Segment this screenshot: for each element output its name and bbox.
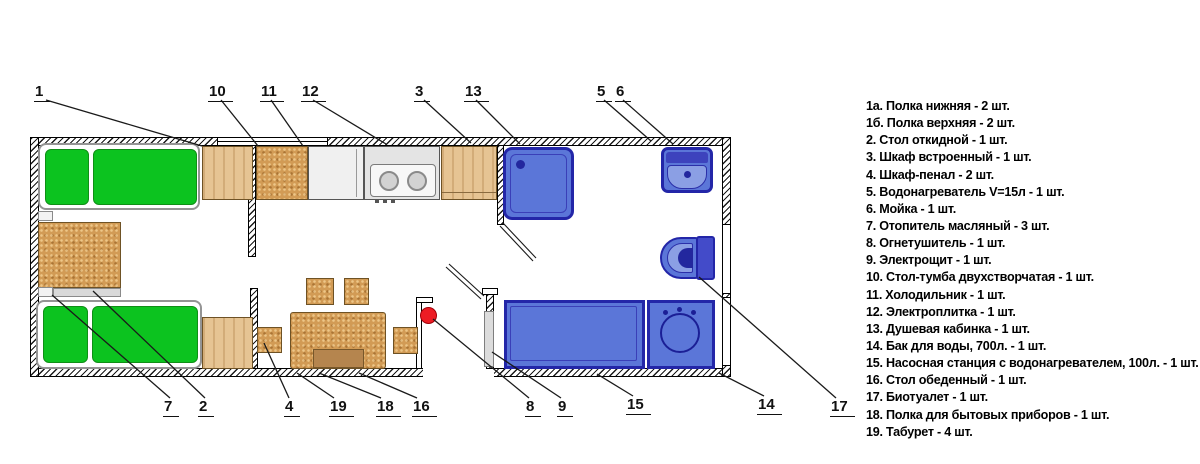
stool (257, 327, 282, 353)
callout-18: 18 (376, 399, 401, 417)
callout-7: 7 (163, 399, 179, 417)
callout-12: 12 (301, 84, 326, 102)
wall-bottom (30, 368, 731, 377)
legend-item: 2. Стол откидной - 1 шт. (866, 132, 1199, 149)
legend-item: 11. Холодильник - 1 шт. (866, 287, 1199, 304)
legend-item: 15. Насосная станция с водонагревателем,… (866, 355, 1199, 372)
folding-table-edge (53, 288, 121, 297)
water-tank (647, 300, 715, 369)
electrical-panel (484, 311, 494, 367)
callout-13: 13 (464, 84, 489, 102)
mattress (43, 306, 88, 363)
entry-jamb-cap (416, 297, 433, 303)
callout-14: 14 (757, 397, 782, 415)
callout-9: 9 (557, 399, 573, 417)
stove (364, 146, 440, 200)
legend-item: 10. Стол-тумба двухстворчатая - 1 шт. (866, 269, 1199, 286)
shower-drain (516, 160, 525, 169)
pump-station (504, 300, 645, 369)
legend-item: 17. Биотуалет - 1 шт. (866, 389, 1199, 406)
legend-item: 7. Отопитель масляный - 3 шт. (866, 218, 1199, 235)
tall-cabinet-top (202, 146, 253, 200)
tall-cabinet-bottom (202, 317, 253, 369)
legend-item: 4. Шкаф-пенал - 2 шт. (866, 167, 1199, 184)
callout-3: 3 (414, 84, 430, 102)
callout-10: 10 (208, 84, 233, 102)
window-top (217, 137, 328, 146)
appliance-shelf (313, 349, 364, 368)
legend-item: 3. Шкаф встроенный - 1 шт. (866, 149, 1199, 166)
door-panel-right-upper (722, 224, 731, 294)
oil-heater (38, 287, 53, 297)
callout-4: 4 (284, 399, 300, 417)
legend-item: 1а. Полка нижняя - 2 шт. (866, 98, 1199, 115)
callout-6: 6 (615, 84, 631, 102)
legend-item: 16. Стол обеденный - 1 шт. (866, 372, 1199, 389)
mattress (92, 306, 198, 363)
legend: 1а. Полка нижняя - 2 шт. 1б. Полка верхн… (866, 98, 1199, 441)
legend-item: 8. Огнетушитель - 1 шт. (866, 235, 1199, 252)
legend-item: 19. Табурет - 4 шт. (866, 424, 1199, 441)
callout-2: 2 (198, 399, 214, 417)
callout-16: 16 (412, 399, 437, 417)
mattress (93, 149, 197, 205)
legend-item: 12. Электроплитка - 1 шт. (866, 304, 1199, 321)
legend-item: 6. Мойка - 1 шт. (866, 201, 1199, 218)
legend-item: 18. Полка для бытовых приборов - 1 шт. (866, 407, 1199, 424)
door-opening-bottom (423, 367, 494, 378)
oil-heater (38, 211, 53, 221)
callout-17: 17 (830, 399, 855, 417)
mattress (45, 149, 89, 205)
stool (393, 327, 418, 354)
stool (344, 278, 369, 305)
toilet-tank (696, 236, 715, 280)
partition-tank-cap (482, 288, 498, 295)
legend-item: 1б. Полка верхняя - 2 шт. (866, 115, 1199, 132)
legend-item: 14. Бак для воды, 700л. - 1 шт. (866, 338, 1199, 355)
callout-1: 1 (34, 84, 50, 102)
stove-burner (407, 171, 427, 191)
legend-item: 9. Электрощит - 1 шт. (866, 252, 1199, 269)
callout-15: 15 (626, 397, 651, 415)
sink-drain (684, 171, 691, 178)
legend-item: 5. Водонагреватель V=15л - 1 шт. (866, 184, 1199, 201)
built-in-wardrobe (441, 146, 497, 200)
callout-11: 11 (260, 84, 284, 102)
stool (306, 278, 334, 305)
cabinet-table-10 (256, 146, 308, 200)
folding-table (38, 222, 121, 288)
door-panel-right-lower (722, 297, 731, 366)
callout-5: 5 (596, 84, 612, 102)
toilet (660, 236, 716, 280)
fridge (308, 146, 364, 200)
fire-extinguisher (420, 307, 437, 324)
callout-19: 19 (329, 399, 354, 417)
stove-burner (379, 171, 399, 191)
callout-8: 8 (525, 399, 541, 417)
legend-item: 13. Душевая кабинка - 1 шт. (866, 321, 1199, 338)
sink (661, 147, 713, 193)
floor-plan-figure: 1 10 11 12 3 13 5 6 7 2 4 19 18 16 8 9 1… (0, 0, 1200, 464)
shower-cabin (503, 147, 574, 220)
tank-lid (660, 313, 700, 353)
